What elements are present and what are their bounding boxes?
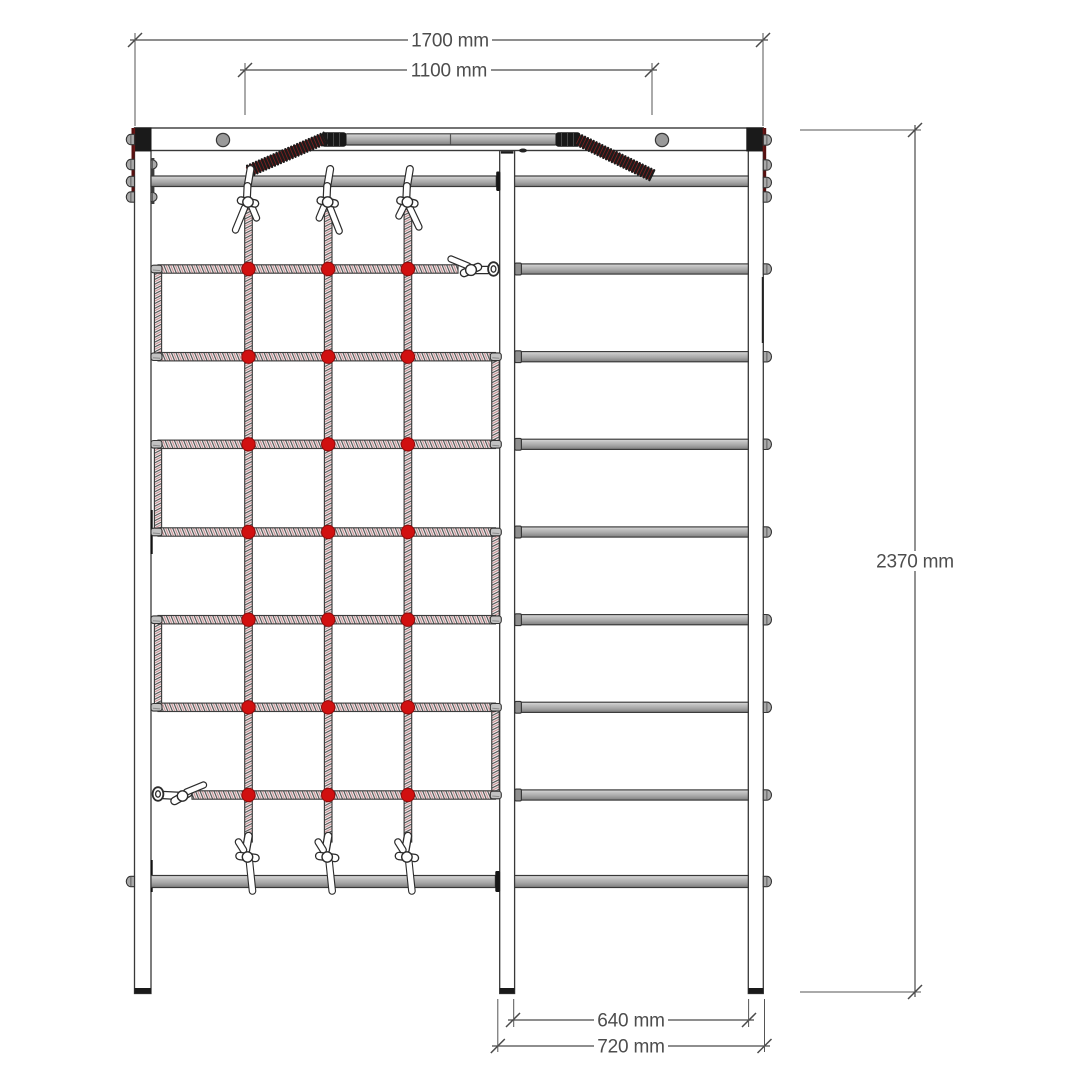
svg-text:720 mm: 720 mm bbox=[597, 1037, 664, 1058]
svg-text:1700 mm: 1700 mm bbox=[411, 31, 489, 52]
svg-text:1100 mm: 1100 mm bbox=[411, 61, 487, 82]
svg-text:2370 mm: 2370 mm bbox=[876, 552, 954, 573]
svg-text:640 mm: 640 mm bbox=[597, 1011, 664, 1032]
